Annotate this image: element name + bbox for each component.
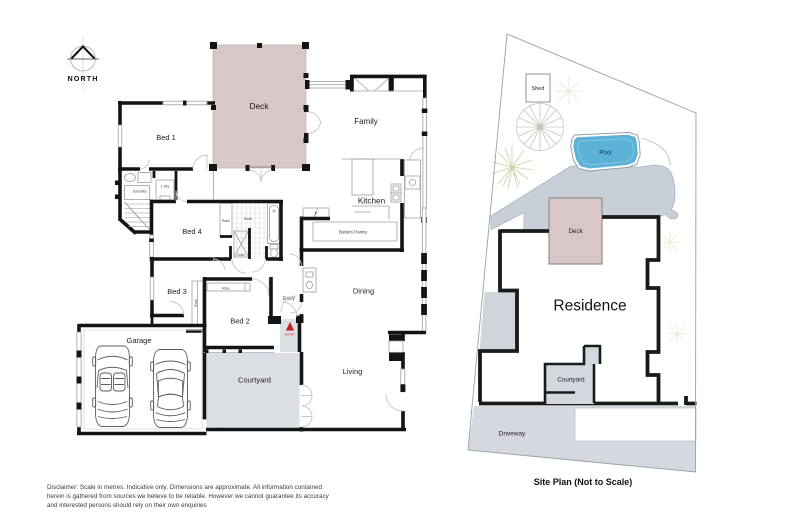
- svg-text:L'dry: L'dry: [161, 184, 170, 189]
- svg-text:Shed: Shed: [532, 86, 545, 92]
- svg-text:Driveway: Driveway: [499, 431, 526, 438]
- svg-text:F: F: [315, 211, 318, 216]
- svg-text:Bath: Bath: [244, 217, 251, 221]
- svg-text:Living: Living: [343, 367, 363, 376]
- svg-text:Dining: Dining: [353, 287, 374, 296]
- svg-text:Robe: Robe: [222, 219, 230, 223]
- svg-text:Bed 3: Bed 3: [167, 287, 187, 296]
- svg-text:Site Plan (Not to Scale): Site Plan (Not to Scale): [534, 477, 633, 487]
- svg-text:Bed 2: Bed 2: [230, 317, 250, 326]
- svg-text:Deck: Deck: [568, 228, 583, 235]
- svg-text:Robe: Robe: [194, 299, 198, 307]
- svg-text:Deck: Deck: [249, 101, 269, 111]
- svg-text:Ensuite: Ensuite: [133, 189, 147, 194]
- svg-text:Robe: Robe: [222, 287, 230, 291]
- svg-text:Disclaimer: Scale in metres. I: Disclaimer: Scale in metres. Indicative …: [47, 484, 322, 491]
- svg-text:Bed 4: Bed 4: [182, 227, 202, 236]
- svg-text:Residence: Residence: [553, 298, 626, 315]
- svg-text:Bed 1: Bed 1: [156, 133, 176, 142]
- svg-text:Family: Family: [354, 117, 378, 126]
- svg-text:Pool: Pool: [599, 150, 611, 157]
- svg-text:Courtyard: Courtyard: [557, 377, 585, 384]
- svg-text:herein is gathered from source: herein is gathered from sources we belie…: [47, 493, 330, 500]
- svg-text:Butlers Pantry: Butlers Pantry: [339, 230, 368, 235]
- svg-text:and interested persons should: and interested persons should rely on th…: [47, 502, 207, 509]
- svg-text:Garage: Garage: [126, 336, 151, 345]
- svg-text:Linen: Linen: [237, 253, 245, 257]
- svg-text:ENTRY: ENTRY: [285, 333, 295, 337]
- svg-text:Courtyard: Courtyard: [238, 376, 271, 385]
- svg-text:NORTH: NORTH: [67, 74, 98, 83]
- svg-text:Kitchen: Kitchen: [358, 197, 386, 206]
